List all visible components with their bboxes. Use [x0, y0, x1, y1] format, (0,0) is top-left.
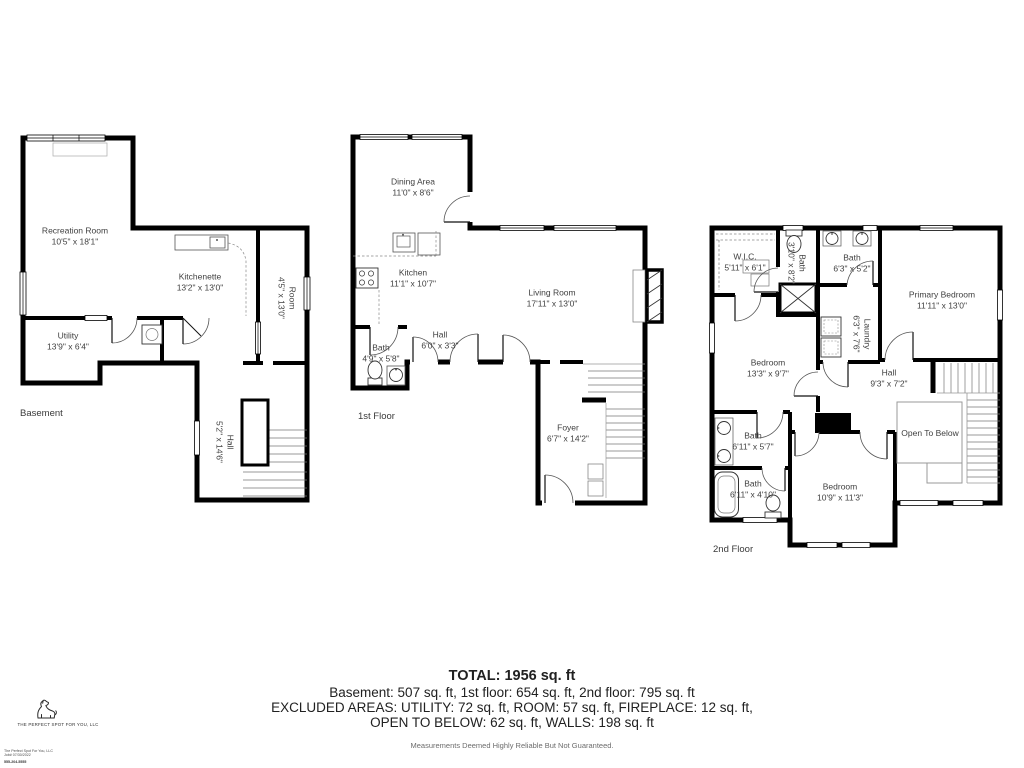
room-label-bath-1st: Bath4'9" x 5'8": [362, 343, 399, 364]
second-floor-plan: W.I.C.5'11" x 6'1" Bath3'10" x 8'2" Bath…: [705, 222, 1005, 562]
room-label-recreation: Recreation Room10'5" x 18'1": [42, 226, 108, 247]
total-area-line: TOTAL: 1956 sq. ft: [0, 669, 1024, 685]
dog-logo-icon: [33, 698, 59, 720]
room-label-hall-1st: Hall6'0" x 3'3": [421, 330, 458, 351]
room-label-dining: Dining Area11'0" x 8'6": [391, 177, 435, 198]
fine-print-line-2: Job# 07/30/2022: [4, 753, 53, 757]
basement-plan: Recreation Room10'5" x 18'1" Kitchenette…: [15, 130, 311, 510]
floorplan-sheet: Recreation Room10'5" x 18'1" Kitchenette…: [0, 0, 1024, 768]
second-floor-label: 2nd Floor: [713, 544, 753, 555]
first-floor-label: 1st Floor: [358, 411, 395, 422]
room-label-primary-bedroom: Primary Bedroom11'11" x 13'0": [909, 290, 975, 311]
fine-print-line-3: 555-204-5555: [4, 760, 53, 764]
room-label-basement-hall: Hall5'2" x 14'6": [215, 421, 236, 463]
shower-xbox: [780, 284, 816, 313]
room-label-room: Room4'5" x 13'0": [277, 277, 298, 319]
room-label-bedroom-1: Bedroom13'3" x 9'7": [747, 358, 789, 379]
bath-fixtures: [368, 361, 405, 385]
room-label-kitchenette: Kitchenette13'2" x 13'0": [177, 272, 224, 293]
floor-areas-line: Basement: 507 sq. ft, 1st floor: 654 sq.…: [0, 685, 1024, 700]
room-label-living: Living Room17'11" x 13'0": [527, 288, 578, 309]
room-label-bedroom-2: Bedroom10'9" x 11'3": [817, 482, 863, 503]
fine-print: The Perfect Spot For You, LLC Job# 07/30…: [4, 749, 53, 764]
company-name: THE PERFECT SPOT FOR YOU, LLC: [8, 722, 108, 727]
first-floor-plan: Dining Area11'0" x 8'6" Kitchen11'1" x 1…: [350, 128, 670, 508]
room-label-utility: Utility13'9" x 6'4": [47, 331, 89, 352]
excluded-areas-line: EXCLUDED AREAS: UTILITY: 72 sq. ft, ROOM…: [0, 700, 1024, 715]
room-label-hall-2nd: Hall9'3" x 7'2": [870, 368, 907, 389]
first-floor-stairs: [582, 364, 645, 498]
fireplace: [633, 270, 662, 322]
room-label-open-to-below: Open To Below: [901, 428, 959, 439]
basement-stairs: [242, 400, 307, 496]
basement-floor-label: Basement: [20, 408, 63, 419]
room-label-bath-vertical: Bath3'10" x 8'2": [787, 242, 808, 284]
excluded-areas-line-2: OPEN TO BELOW: 62 sq. ft, WALLS: 198 sq.…: [0, 715, 1024, 730]
room-label-bath-410: Bath6'11" x 4'10": [730, 479, 776, 500]
room-label-laundry: Laundry6'3" x 7'6": [852, 315, 873, 352]
basement-floorplan-svg: [15, 130, 311, 510]
second-floor-stairs: [897, 363, 1000, 483]
room-label-kitchen: Kitchen11'1" x 10'7": [390, 268, 436, 289]
chase-block: [815, 413, 851, 433]
room-label-bath-63: Bath6'3" x 5'2": [833, 253, 870, 274]
area-summary: TOTAL: 1956 sq. ft Basement: 507 sq. ft,…: [0, 669, 1024, 730]
room-label-foyer: Foyer6'7" x 14'2": [547, 423, 589, 444]
room-label-bath-57: Bath6'11" x 5'7": [732, 431, 773, 452]
disclaimer-text: Measurements Deemed Highly Reliable But …: [0, 741, 1024, 750]
room-label-wic: W.I.C.5'11" x 6'1": [724, 252, 765, 273]
